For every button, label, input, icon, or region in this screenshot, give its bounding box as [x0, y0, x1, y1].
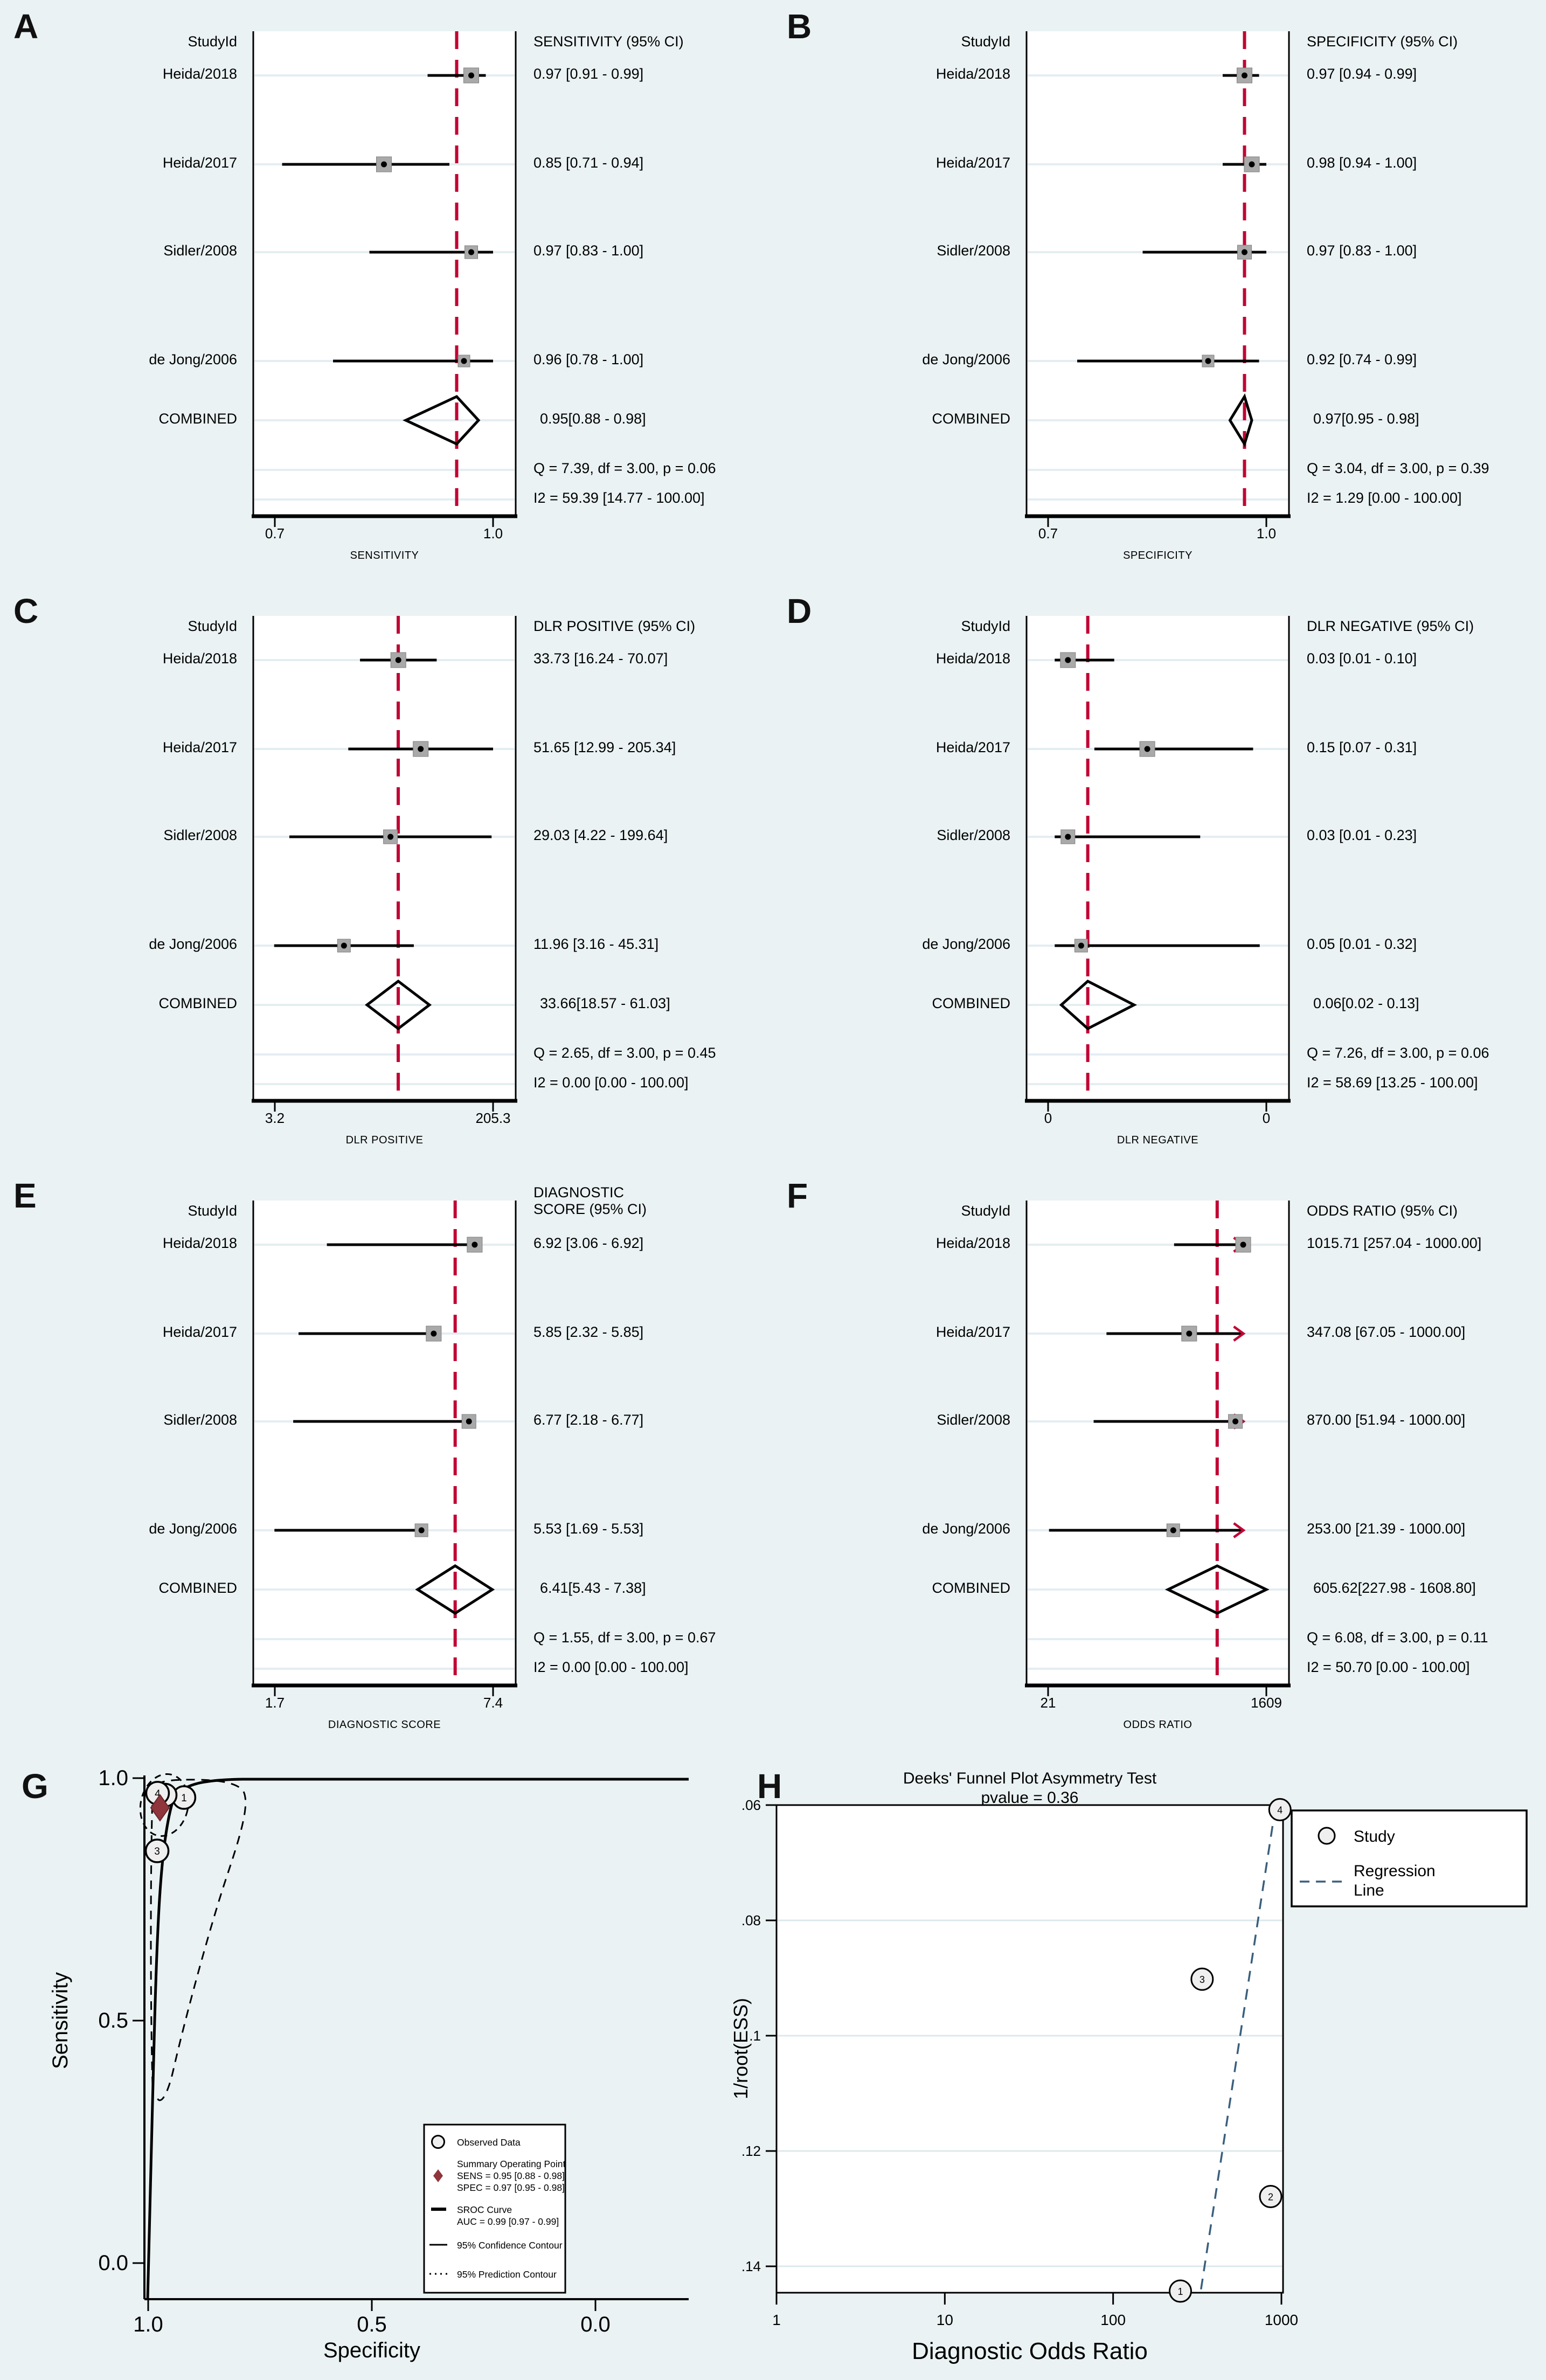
- column-header: StudyId: [0, 1203, 237, 1219]
- study-label: Heida/2018: [0, 1235, 237, 1252]
- study-label: de Jong/2006: [0, 936, 237, 953]
- study-ci-text: 1015.71 [257.04 - 1000.00]: [1307, 1235, 1544, 1252]
- study-label: Heida/2018: [773, 66, 1010, 82]
- study-ci-text: 0.03 [0.01 - 0.23]: [1307, 827, 1544, 844]
- combined-label: COMBINED: [773, 1580, 1010, 1597]
- h-x-tick-label: 1000: [1265, 2312, 1298, 2328]
- combined-ci-text: 33.66[18.57 - 61.03]: [540, 995, 777, 1012]
- estimate-dot: [468, 249, 474, 255]
- study-label: de Jong/2006: [773, 936, 1010, 953]
- estimate-dot: [1240, 1242, 1246, 1248]
- value-header: DIAGNOSTIC SCORE (95% CI): [533, 1184, 771, 1218]
- g-x-axis-title: Specificity: [323, 2339, 420, 2362]
- study-ci-text: 253.00 [21.39 - 1000.00]: [1307, 1521, 1544, 1537]
- study-ci-text: 0.05 [0.01 - 0.32]: [1307, 936, 1544, 953]
- h-plot-box: [777, 1805, 1283, 2293]
- i2-statistic: I2 = 1.29 [0.00 - 100.00]: [1307, 490, 1546, 506]
- panel-letter: H: [757, 1766, 782, 1806]
- study-label: Heida/2017: [0, 155, 237, 171]
- h-y-tick-label: .08: [741, 1912, 761, 1928]
- axis-tick-label-lo: 21: [1016, 1695, 1080, 1711]
- q-statistic: Q = 2.65, df = 3.00, p = 0.45: [533, 1045, 781, 1061]
- value-header: DLR NEGATIVE (95% CI): [1307, 618, 1544, 635]
- study-label: Heida/2017: [0, 739, 237, 756]
- study-label: Heida/2018: [773, 650, 1010, 667]
- study-ci-text: 0.15 [0.07 - 0.31]: [1307, 739, 1544, 756]
- h-x-axis-title: Diagnostic Odds Ratio: [912, 2338, 1148, 2364]
- column-header: StudyId: [0, 618, 237, 635]
- h-x-tick-label: 1: [772, 2312, 781, 2328]
- funnel-point-label: 1: [1177, 2286, 1183, 2297]
- combined-label: COMBINED: [0, 995, 237, 1012]
- i2-statistic: I2 = 50.70 [0.00 - 100.00]: [1307, 1659, 1546, 1676]
- axis-tick-label-hi: 7.4: [461, 1695, 525, 1711]
- h-y-axis-title: 1/root(ESS): [730, 1998, 752, 2099]
- axis-tick-label-lo: 1.7: [242, 1695, 307, 1711]
- combined-ci-text: 605.62[227.98 - 1608.80]: [1313, 1580, 1546, 1597]
- study-ci-text: 29.03 [4.22 - 199.64]: [533, 827, 771, 844]
- forest-plot-box: [253, 31, 516, 516]
- estimate-dot: [1232, 1419, 1238, 1425]
- estimate-dot: [381, 162, 387, 168]
- study-label: de Jong/2006: [773, 351, 1010, 368]
- study-label: Sidler/2008: [0, 242, 237, 259]
- study-label: de Jong/2006: [0, 1521, 237, 1537]
- combined-label: COMBINED: [773, 995, 1010, 1012]
- h-legend-study: Study: [1354, 1828, 1395, 1845]
- combined-ci-text: 0.95[0.88 - 0.98]: [540, 411, 777, 427]
- study-ci-text: 0.98 [0.94 - 1.00]: [1307, 155, 1544, 171]
- axis-tick-label-hi: 1.0: [1234, 525, 1299, 542]
- study-ci-text: 0.96 [0.78 - 1.00]: [533, 351, 771, 368]
- study-ci-text: 347.08 [67.05 - 1000.00]: [1307, 1324, 1544, 1341]
- g-y-tick-label: 1.0: [98, 1766, 128, 1790]
- study-ci-text: 0.97 [0.83 - 1.00]: [533, 242, 771, 259]
- i2-statistic: I2 = 0.00 [0.00 - 100.00]: [533, 1659, 781, 1676]
- observed-data-icon: [432, 2136, 445, 2148]
- study-ci-text: 0.03 [0.01 - 0.10]: [1307, 650, 1544, 667]
- g-legend-observed: Observed Data: [457, 2137, 521, 2148]
- study-label: Sidler/2008: [773, 827, 1010, 844]
- study-ci-text: 5.85 [2.32 - 5.85]: [533, 1324, 771, 1341]
- study-label: Heida/2018: [0, 66, 237, 82]
- combined-ci-text: 6.41[5.43 - 7.38]: [540, 1580, 777, 1597]
- study-ci-text: 5.53 [1.69 - 5.53]: [533, 1521, 771, 1537]
- estimate-dot: [1170, 1528, 1176, 1534]
- h-y-tick-label: .12: [741, 2143, 761, 2159]
- estimate-dot: [1078, 943, 1084, 949]
- observed-point-label: 3: [154, 1846, 160, 1857]
- g-legend-sroc-line: AUC = 0.99 [0.97 - 0.99]: [457, 2216, 559, 2227]
- axis-title: SPECIFICITY: [1027, 550, 1289, 562]
- estimate-dot: [461, 358, 467, 364]
- sroc-curve: [148, 1779, 689, 2299]
- column-header: StudyId: [773, 1203, 1010, 1219]
- axis-tick-label-lo: 0.7: [242, 525, 307, 542]
- h-legend-regression-line2: Line: [1354, 1882, 1384, 1899]
- estimate-dot: [419, 1528, 425, 1534]
- g-y-axis-title: Sensitivity: [48, 1972, 72, 2069]
- study-label: Heida/2017: [773, 739, 1010, 756]
- value-header: SENSITIVITY (95% CI): [533, 33, 771, 50]
- i2-statistic: I2 = 58.69 [13.25 - 100.00]: [1307, 1074, 1546, 1091]
- axis-tick-label-hi: 1.0: [461, 525, 525, 542]
- combined-ci-text: 0.97[0.95 - 0.98]: [1313, 411, 1546, 427]
- i2-statistic: I2 = 59.39 [14.77 - 100.00]: [533, 490, 781, 506]
- h-legend-box: [1292, 1810, 1527, 1906]
- study-label: Heida/2017: [0, 1324, 237, 1341]
- study-ci-text: 6.92 [3.06 - 6.92]: [533, 1235, 771, 1252]
- deeks-title: Deeks' Funnel Plot Asymmetry Test: [903, 1770, 1157, 1787]
- estimate-dot: [341, 943, 347, 949]
- study-ci-text: 6.77 [2.18 - 6.77]: [533, 1412, 771, 1428]
- estimate-dot: [466, 1419, 472, 1425]
- g-y-tick-label: 0.5: [98, 2009, 128, 2032]
- axis-tick-label-hi: 0: [1234, 1110, 1299, 1127]
- study-label: de Jong/2006: [0, 351, 237, 368]
- combined-label: COMBINED: [0, 411, 237, 427]
- axis-title: SENSITIVITY: [253, 550, 516, 562]
- study-label: de Jong/2006: [773, 1521, 1010, 1537]
- estimate-dot: [396, 657, 401, 663]
- axis-title: ODDS RATIO: [1027, 1719, 1289, 1731]
- combined-ci-text: 0.06[0.02 - 0.13]: [1313, 995, 1546, 1012]
- g-legend-summary-line: Summary Operating Point: [457, 2159, 565, 2169]
- h-x-tick-label: 10: [937, 2312, 953, 2328]
- combined-label: COMBINED: [773, 411, 1010, 427]
- study-label: Heida/2018: [773, 1235, 1010, 1252]
- study-ci-text: 11.96 [3.16 - 45.31]: [533, 936, 771, 953]
- q-statistic: Q = 7.26, df = 3.00, p = 0.06: [1307, 1045, 1546, 1061]
- study-label: Sidler/2008: [0, 827, 237, 844]
- g-legend-summary-line: SPEC = 0.97 [0.95 - 0.98]: [457, 2182, 565, 2193]
- study-ci-text: 870.00 [51.94 - 1000.00]: [1307, 1412, 1544, 1428]
- estimate-dot: [418, 746, 424, 752]
- estimate-dot: [1242, 249, 1247, 255]
- study-ci-text: 0.85 [0.71 - 0.94]: [533, 155, 771, 171]
- axis-tick-label-lo: 3.2: [242, 1110, 307, 1127]
- forest-plot-box: [253, 1201, 516, 1685]
- study-label: Heida/2018: [0, 650, 237, 667]
- forest-plot-box: [1027, 1201, 1289, 1685]
- estimate-dot: [1145, 746, 1150, 752]
- q-statistic: Q = 6.08, df = 3.00, p = 0.11: [1307, 1629, 1546, 1646]
- bottom-charts: 1.00.50.01.00.50.0SensitivitySpecificity…: [0, 1762, 1546, 2380]
- forest-plot-box: [253, 616, 516, 1101]
- estimate-dot: [1205, 358, 1211, 364]
- funnel-point-label: 2: [1268, 2192, 1273, 2203]
- funnel-point-label: 4: [1277, 1805, 1282, 1816]
- axis-title: DLR NEGATIVE: [1027, 1134, 1289, 1147]
- estimate-dot: [472, 1242, 477, 1248]
- g-legend-summary-line: SENS = 0.95 [0.88 - 0.98]: [457, 2170, 565, 2181]
- q-statistic: Q = 3.04, df = 3.00, p = 0.39: [1307, 460, 1546, 477]
- axis-tick-label-lo: 0: [1016, 1110, 1080, 1127]
- study-ci-text: 51.65 [12.99 - 205.34]: [533, 739, 771, 756]
- study-label: Heida/2017: [773, 155, 1010, 171]
- estimate-dot: [1186, 1331, 1192, 1337]
- axis-tick-label-lo: 0.7: [1016, 525, 1080, 542]
- h-x-tick-label: 100: [1100, 2312, 1126, 2328]
- g-x-tick-label: 0.0: [580, 2313, 611, 2336]
- estimate-dot: [387, 834, 393, 840]
- axis-tick-label-hi: 1609: [1234, 1695, 1299, 1711]
- study-ci-text: 0.97 [0.94 - 0.99]: [1307, 66, 1544, 82]
- column-header: StudyId: [773, 33, 1010, 50]
- study-ci-text: 0.92 [0.74 - 0.99]: [1307, 351, 1544, 368]
- h-y-tick-label: .14: [741, 2258, 761, 2274]
- estimate-dot: [1242, 73, 1247, 79]
- value-header: SPECIFICITY (95% CI): [1307, 33, 1544, 50]
- h-legend-regression: Regression: [1354, 1862, 1436, 1880]
- axis-title: DLR POSITIVE: [253, 1134, 516, 1147]
- forest-plot-box: [1027, 616, 1289, 1101]
- g-legend-pred: 95% Prediction Contour: [457, 2269, 557, 2280]
- study-label: Sidler/2008: [773, 1412, 1010, 1428]
- estimate-dot: [1065, 657, 1071, 663]
- q-statistic: Q = 7.39, df = 3.00, p = 0.06: [533, 460, 781, 477]
- study-ci-text: 33.73 [16.24 - 70.07]: [533, 650, 771, 667]
- study-label: Sidler/2008: [0, 1412, 237, 1428]
- column-header: StudyId: [773, 618, 1010, 635]
- g-legend-sroc-line: SROC Curve: [457, 2204, 512, 2215]
- axis-tick-label-hi: 205.3: [461, 1110, 525, 1127]
- study-label: Heida/2017: [773, 1324, 1010, 1341]
- g-legend-conf: 95% Confidence Contour: [457, 2240, 563, 2251]
- observed-point-label: 1: [181, 1793, 187, 1804]
- combined-label: COMBINED: [0, 1580, 237, 1597]
- estimate-dot: [468, 73, 474, 79]
- value-header: DLR POSITIVE (95% CI): [533, 618, 771, 635]
- g-y-tick-label: 0.0: [98, 2251, 128, 2275]
- study-ci-text: 0.97 [0.83 - 1.00]: [1307, 242, 1544, 259]
- funnel-point-label: 3: [1200, 1974, 1205, 1985]
- q-statistic: Q = 1.55, df = 3.00, p = 0.67: [533, 1629, 781, 1646]
- deeks-pvalue: pvalue = 0.36: [981, 1789, 1079, 1807]
- estimate-dot: [1249, 162, 1255, 168]
- study-icon: [1319, 1828, 1335, 1844]
- column-header: StudyId: [0, 33, 237, 50]
- panel-letter: G: [22, 1766, 48, 1806]
- prediction-contour: [151, 1780, 246, 2100]
- g-x-tick-label: 0.5: [357, 2313, 387, 2336]
- value-header: ODDS RATIO (95% CI): [1307, 1203, 1544, 1219]
- estimate-dot: [431, 1331, 436, 1337]
- study-label: Sidler/2008: [773, 242, 1010, 259]
- study-ci-text: 0.97 [0.91 - 0.99]: [533, 66, 771, 82]
- forest-plot-box: [1027, 31, 1289, 516]
- g-x-tick-label: 1.0: [133, 2313, 163, 2336]
- axis-title: DIAGNOSTIC SCORE: [253, 1719, 516, 1731]
- estimate-dot: [1065, 834, 1071, 840]
- meta-analysis-figure: AStudyIdSENSITIVITY (95% CI)Heida/20180.…: [0, 0, 1546, 2380]
- i2-statistic: I2 = 0.00 [0.00 - 100.00]: [533, 1074, 781, 1091]
